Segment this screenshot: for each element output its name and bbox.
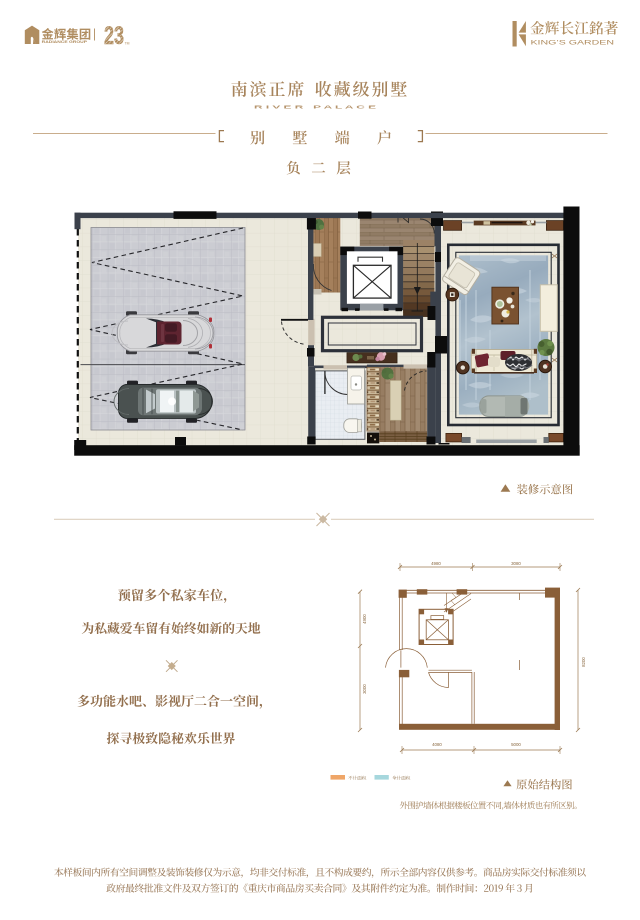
svg-text:KING’S GARDEN: KING’S GARDEN [531, 39, 615, 46]
svg-text:4080: 4080 [432, 742, 442, 747]
svg-text:RADIANCE GROUP: RADIANCE GROUP [42, 39, 88, 44]
svg-text:4980: 4980 [431, 561, 441, 566]
svg-text:5000: 5000 [511, 742, 521, 747]
svg-text:TM: TM [125, 41, 130, 45]
svg-text:3080: 3080 [511, 561, 521, 566]
svg-text:4900: 4900 [362, 614, 367, 624]
svg-text:23: 23 [104, 22, 124, 50]
svg-text:8200: 8200 [581, 657, 586, 667]
svg-text:3000: 3000 [362, 684, 367, 694]
svg-text:R I V E R P A L A C E: R I V E R P A L A C E [254, 104, 376, 109]
